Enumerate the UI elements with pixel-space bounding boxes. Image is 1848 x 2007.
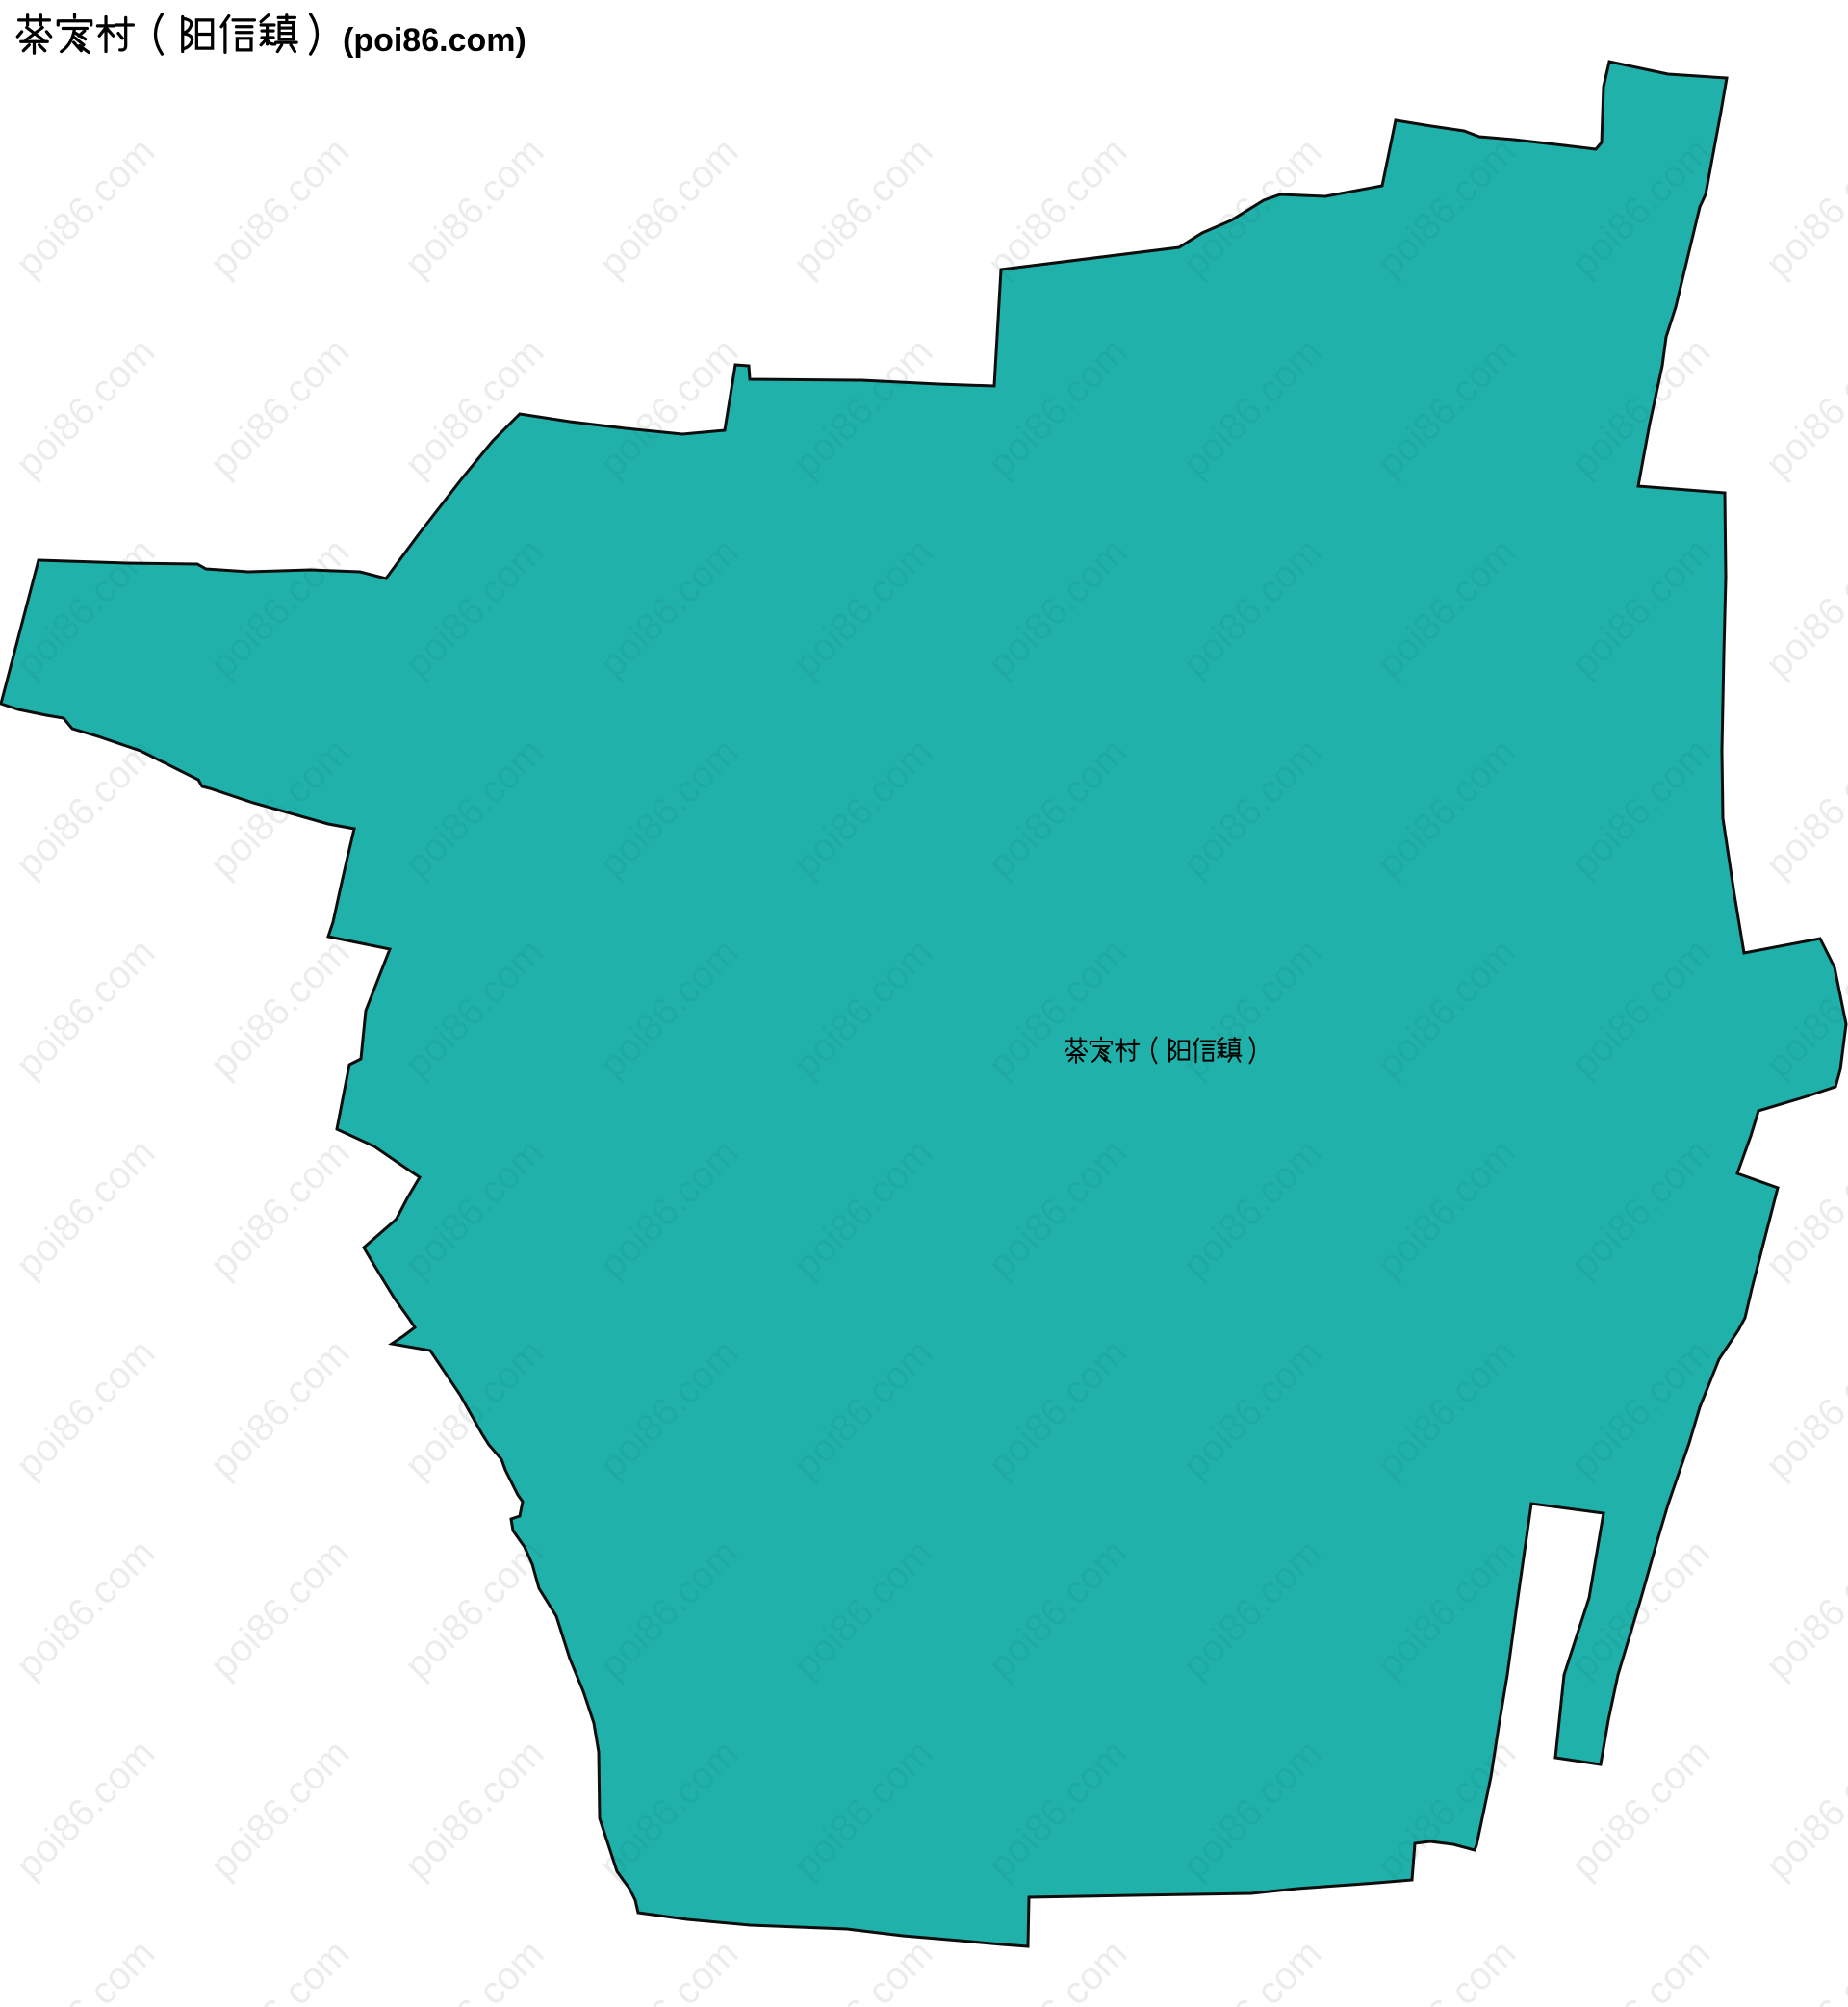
svg-text:(poi86.com): (poi86.com)	[343, 22, 526, 59]
